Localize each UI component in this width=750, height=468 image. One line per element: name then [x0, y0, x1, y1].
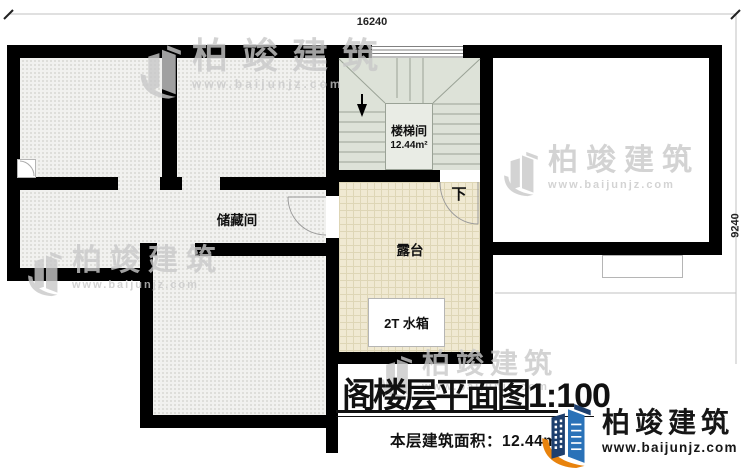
watermark-url: www.baijunjz.com — [192, 78, 392, 90]
watermark-name: 柏竣建筑 — [548, 146, 700, 176]
watermark: 柏竣建筑 www.baijunjz.com — [138, 38, 392, 106]
stairwell-area-label: 12.44m² — [390, 140, 427, 151]
storage-label: 储藏间 — [205, 209, 269, 229]
watermark-url: www.baijunjz.com — [548, 180, 700, 191]
brand-logo-icon — [538, 403, 598, 468]
brand-url: www.baijunjz.com — [602, 440, 738, 455]
watermark: 柏竣建筑 www.baijunjz.com — [26, 246, 224, 302]
watermark-logo-icon — [502, 146, 542, 202]
attic-floor-plan-page: 楼梯间 12.44m² 16240 9240 柏竣建筑 www.baijunjz… — [0, 0, 750, 468]
water-tank-box: 2T 水箱 — [368, 298, 445, 347]
terrace-label: 露台 — [384, 239, 436, 259]
watermark-logo-icon — [138, 38, 186, 106]
down-label: 下 — [448, 183, 470, 204]
brand-block: 柏竣建筑 www.baijunjz.com — [538, 403, 738, 468]
storage-door — [288, 197, 326, 235]
dimension-label-right: 9240 — [730, 204, 743, 248]
watermark: 柏竣建筑 www.baijunjz.com — [502, 146, 700, 202]
watermark-name: 柏竣建筑 — [192, 38, 392, 74]
watermark-url: www.baijunjz.com — [72, 280, 224, 291]
title-underline-thick — [336, 410, 558, 413]
watermark-name: 柏竣建筑 — [72, 246, 224, 276]
stairwell-label: 楼梯间 — [391, 122, 427, 139]
water-tank-label: 2T 水箱 — [384, 313, 429, 332]
stairwell-landing: 楼梯间 12.44m² — [385, 103, 433, 170]
dimension-label-top: 16240 — [348, 16, 396, 28]
corner-fixture-arc — [20, 161, 34, 176]
watermark-logo-icon — [26, 246, 66, 302]
brand-name: 柏竣建筑 — [602, 409, 738, 437]
